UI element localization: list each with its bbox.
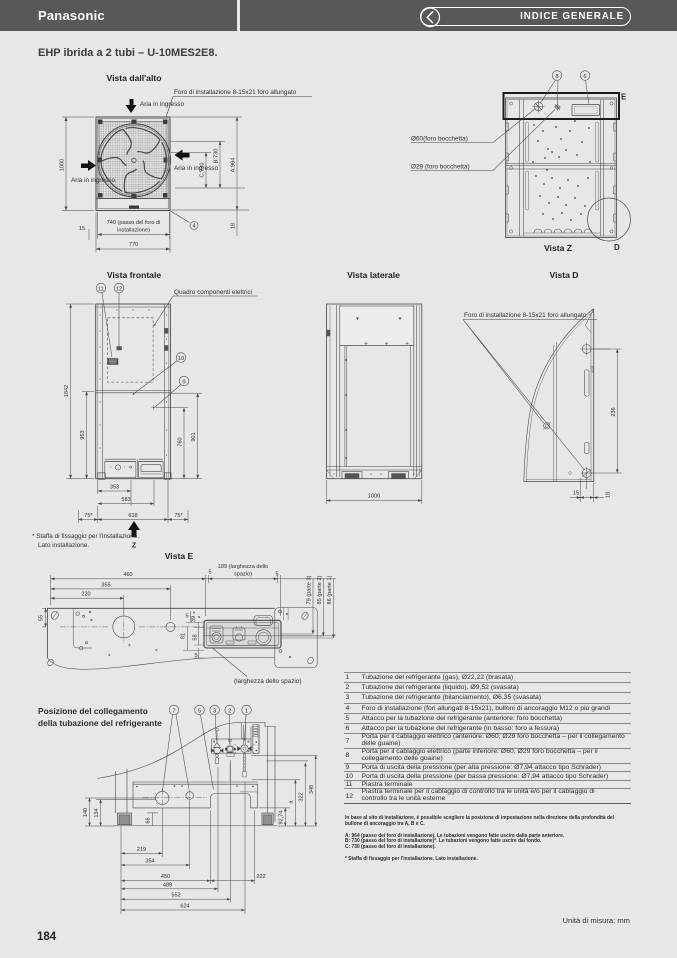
svg-text:55: 55 [39, 615, 45, 621]
svg-text:3: 3 [213, 708, 216, 714]
svg-text:D: D [614, 243, 620, 252]
svg-text:Z: Z [132, 543, 137, 550]
svg-text:Vista laterale: Vista laterale [347, 270, 400, 280]
svg-text:della tubazione del refrigeran: della tubazione del refrigerante [38, 718, 162, 728]
svg-text:86 (parte 1): 86 (parte 1) [327, 575, 333, 604]
svg-text:Vista Z: Vista Z [544, 243, 572, 253]
svg-text:5: 5 [208, 570, 211, 576]
svg-text:10: 10 [178, 356, 184, 362]
svg-text:901: 901 [191, 432, 197, 441]
svg-text:5: 5 [275, 572, 278, 578]
svg-text:Lato installazione.: Lato installazione. [38, 542, 89, 549]
svg-text:5: 5 [198, 708, 201, 714]
svg-text:219: 219 [137, 847, 146, 853]
svg-text:348: 348 [309, 785, 315, 794]
svg-text:Vista E: Vista E [165, 551, 194, 561]
svg-text:a: a [289, 800, 295, 804]
svg-text:92,74: 92,74 [279, 811, 285, 825]
svg-text:740 (passo del foro di: 740 (passo del foro di [107, 220, 161, 226]
svg-text:E: E [621, 93, 627, 102]
svg-text:953: 953 [80, 430, 86, 439]
svg-text:Foro di installazione 8-15x21: Foro di installazione 8-15x21 foro allun… [174, 89, 297, 96]
svg-text:C:730: C:730 [200, 163, 206, 178]
svg-text:installazione): installazione) [117, 228, 150, 234]
svg-text:6: 6 [583, 74, 586, 80]
svg-text:1000: 1000 [60, 159, 66, 171]
svg-text:770: 770 [129, 242, 138, 248]
svg-text:Vista frontale: Vista frontale [107, 270, 162, 280]
svg-text:Ø60(foro bocchetta): Ø60(foro bocchetta) [411, 136, 468, 143]
svg-text:79 (parte 3): 79 (parte 3) [307, 575, 313, 604]
svg-text:39: 39 [191, 616, 197, 622]
svg-text:355: 355 [101, 582, 110, 588]
svg-text:66: 66 [146, 817, 152, 823]
svg-text:552: 552 [171, 893, 180, 899]
svg-text:322: 322 [299, 792, 305, 801]
svg-text:81: 81 [181, 633, 187, 639]
svg-text:5: 5 [185, 614, 188, 620]
svg-text:Vista D: Vista D [550, 270, 579, 280]
svg-text:140: 140 [83, 808, 89, 817]
svg-text:85 (parte 2): 85 (parte 2) [317, 575, 323, 604]
svg-text:460: 460 [123, 572, 132, 578]
svg-text:9: 9 [182, 379, 185, 385]
svg-text:75*: 75* [174, 513, 183, 519]
svg-text:75*: 75* [84, 513, 93, 519]
svg-text:624: 624 [180, 904, 189, 910]
svg-text:Aria in ingresso: Aria in ingresso [174, 165, 218, 172]
svg-text:7: 7 [172, 708, 175, 714]
svg-text:236: 236 [611, 407, 617, 416]
svg-text:220: 220 [81, 592, 90, 598]
svg-text:4: 4 [192, 224, 195, 230]
svg-text:2: 2 [228, 708, 231, 714]
svg-text:15: 15 [79, 226, 85, 232]
svg-text:Vista dall'alto: Vista dall'alto [107, 73, 162, 83]
svg-text:12: 12 [116, 286, 122, 292]
svg-text:189 (larghezza dello: 189 (larghezza dello [218, 564, 268, 570]
svg-text:8: 8 [555, 74, 558, 80]
svg-text:134: 134 [94, 808, 100, 817]
svg-text:58: 58 [193, 634, 199, 640]
svg-text:18: 18 [606, 492, 612, 498]
svg-text:760: 760 [178, 437, 184, 446]
svg-text:354: 354 [145, 859, 154, 865]
svg-text:618: 618 [128, 513, 137, 519]
svg-text:222: 222 [256, 874, 265, 880]
svg-text:B:730: B:730 [214, 149, 220, 164]
svg-text:Foro di installazione 8-15x21: Foro di installazione 8-15x21 foro allun… [464, 312, 587, 319]
svg-text:1842: 1842 [64, 385, 70, 397]
svg-text:Aria in ingresso: Aria in ingresso [140, 101, 184, 108]
svg-text:489: 489 [163, 882, 172, 888]
svg-text:353: 353 [110, 485, 119, 491]
svg-text:450: 450 [161, 874, 170, 880]
svg-text:Quadro componenti elettrici: Quadro componenti elettrici [174, 289, 252, 296]
svg-text:(larghezza dello spazio): (larghezza dello spazio) [234, 678, 302, 685]
svg-text:Ø29 (foro bocchetta): Ø29 (foro bocchetta) [411, 164, 470, 171]
svg-text:15: 15 [573, 491, 579, 497]
svg-text:11: 11 [98, 286, 104, 292]
svg-text:* Staffa di fissaggio per l'in: * Staffa di fissaggio per l'installazion… [32, 533, 139, 540]
svg-text:1000: 1000 [368, 494, 380, 500]
svg-text:18: 18 [231, 223, 237, 229]
svg-text:583: 583 [121, 497, 130, 503]
svg-text:1: 1 [245, 708, 248, 714]
svg-text:A:964: A:964 [231, 158, 237, 173]
svg-text:spazio): spazio) [234, 572, 252, 578]
svg-text:Posizione del collegamento: Posizione del collegamento [38, 706, 148, 716]
